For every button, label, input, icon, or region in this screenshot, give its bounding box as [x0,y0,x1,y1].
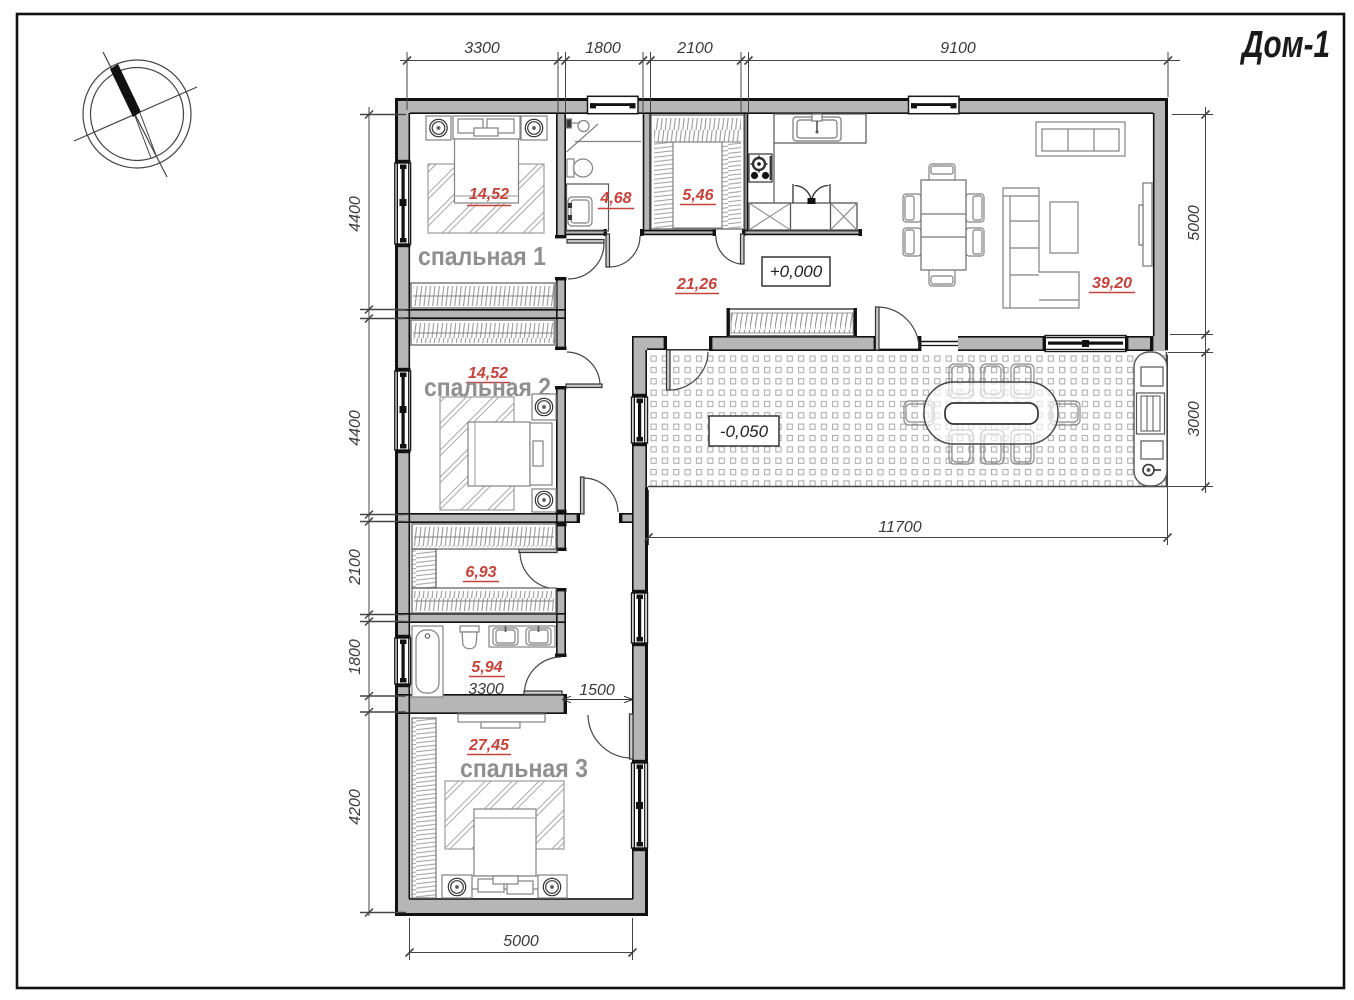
svg-text:Дом-1: Дом-1 [1240,24,1330,66]
svg-text:1800: 1800 [585,40,621,57]
svg-text:4200: 4200 [347,789,364,825]
svg-text:5000: 5000 [503,933,539,950]
svg-text:-0,050: -0,050 [720,422,769,441]
svg-text:14,52: 14,52 [469,186,509,203]
svg-text:спальная 1: спальная 1 [418,241,546,271]
svg-text:2100: 2100 [347,549,364,586]
svg-text:9100: 9100 [940,40,976,57]
svg-text:21,26: 21,26 [676,276,717,293]
svg-text:4400: 4400 [347,196,364,232]
svg-text:39,20: 39,20 [1092,275,1132,292]
svg-text:11700: 11700 [878,519,921,536]
svg-text:27,45: 27,45 [468,737,510,754]
svg-text:3300: 3300 [464,40,500,57]
svg-text:5,46: 5,46 [682,187,713,204]
svg-text:+0,000: +0,000 [770,262,823,281]
svg-text:1500: 1500 [579,682,615,699]
svg-text:6,93: 6,93 [465,564,496,581]
svg-text:3300: 3300 [468,681,504,698]
svg-text:2100: 2100 [676,40,713,57]
svg-text:1800: 1800 [347,639,364,675]
svg-text:3000: 3000 [1186,401,1203,437]
svg-text:5000: 5000 [1186,205,1203,241]
svg-text:5,94: 5,94 [471,659,502,676]
svg-text:спальная 3: спальная 3 [460,753,588,783]
svg-text:4,68: 4,68 [599,190,631,207]
svg-text:4400: 4400 [347,410,364,446]
